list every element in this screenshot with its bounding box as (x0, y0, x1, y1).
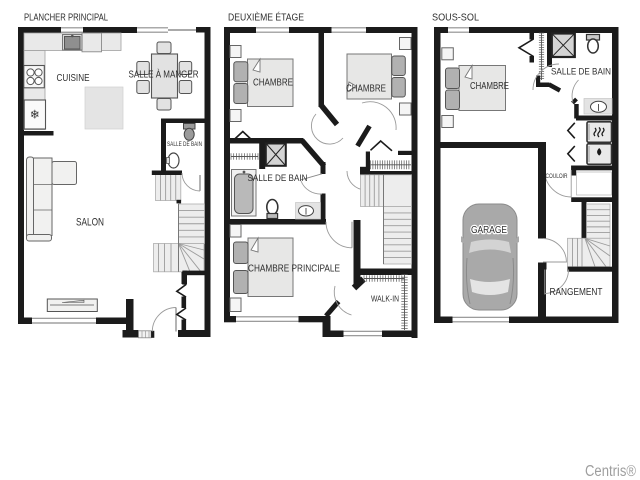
svg-text:CHAMBRE: CHAMBRE (470, 81, 509, 92)
svg-text:WALK-IN: WALK-IN (371, 295, 399, 304)
svg-text:CUISINE: CUISINE (57, 72, 90, 84)
svg-text:CHAMBRE: CHAMBRE (253, 78, 293, 89)
svg-text:CHAMBRE PRINCIPALE: CHAMBRE PRINCIPALE (248, 264, 340, 275)
svg-text:COULOIR: COULOIR (546, 174, 569, 180)
svg-text:Centris®: Centris® (585, 463, 636, 480)
svg-text:RANGEMENT: RANGEMENT (550, 287, 603, 298)
svg-text:❄: ❄ (30, 108, 40, 122)
svg-text:DEUXIÈME ÉTAGE: DEUXIÈME ÉTAGE (228, 11, 304, 24)
svg-text:SALLE À MANGER: SALLE À MANGER (129, 68, 199, 81)
svg-text:SALLE DE BAIN: SALLE DE BAIN (167, 142, 202, 148)
svg-text:SALON: SALON (76, 217, 104, 229)
svg-text:SOUS-SOL: SOUS-SOL (432, 12, 479, 24)
svg-text:SALLE DE BAIN: SALLE DE BAIN (248, 173, 308, 184)
svg-text:GARAGE: GARAGE (471, 225, 507, 236)
svg-text:PLANCHER PRINCIPAL: PLANCHER PRINCIPAL (24, 12, 108, 24)
svg-text:CHAMBRE: CHAMBRE (346, 84, 386, 95)
svg-text:SALLE DE BAIN: SALLE DE BAIN (551, 67, 611, 78)
